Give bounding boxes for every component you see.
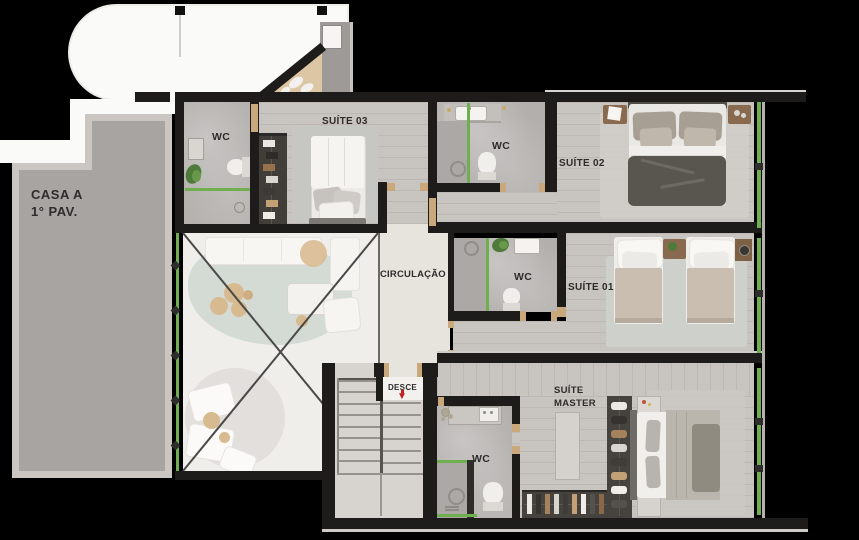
door-frame — [438, 397, 444, 406]
unit-title: CASA A 1° PAV. — [31, 186, 83, 220]
window-mullion — [755, 163, 763, 170]
stair-tread — [337, 437, 381, 439]
clothes-item — [611, 458, 627, 466]
pendant-light — [441, 417, 445, 421]
stair-tread — [337, 460, 381, 462]
flower — [642, 400, 646, 404]
bed-blanket — [687, 268, 734, 322]
stairs-down-icon-stem — [401, 390, 404, 395]
clothes-item — [590, 494, 595, 514]
door-frame — [557, 307, 566, 317]
clothes-item — [611, 444, 627, 452]
wall-segment — [175, 471, 335, 480]
duvet-fold — [686, 412, 687, 498]
flower — [648, 403, 651, 406]
wall-segment — [437, 353, 763, 363]
door-frame — [387, 183, 395, 191]
plant-leaf — [499, 241, 508, 249]
wall-segment — [512, 396, 520, 424]
stair-center-line — [380, 473, 382, 516]
wall-segment — [448, 233, 454, 312]
wall-segment — [135, 92, 170, 102]
door-frame — [500, 183, 506, 192]
stair-tread — [337, 380, 381, 382]
window-mullion — [171, 441, 181, 451]
pendant-light — [448, 414, 453, 419]
stair-tread — [337, 391, 381, 393]
nightstand — [637, 497, 661, 517]
door-opening — [389, 363, 417, 377]
window-mullion — [171, 261, 181, 271]
wall-segment — [423, 377, 437, 518]
wall-segment — [175, 92, 184, 233]
door-frame — [512, 446, 520, 454]
room-label-suite01: SUÍTE 01 — [568, 282, 614, 293]
wall-segment — [175, 224, 387, 233]
cup — [734, 110, 740, 116]
door-frame — [251, 104, 258, 132]
floor-plan-canvas: CASA A 1° PAV. WC SUÍTE 03 WC SUÍTE 02 C… — [0, 0, 859, 540]
stair-tread — [337, 426, 381, 428]
terrace-upper-fill — [92, 160, 165, 172]
soap-tray — [479, 407, 499, 422]
circulation-floor — [378, 233, 450, 363]
toilet — [483, 482, 503, 504]
clothes-item — [263, 164, 275, 171]
clothes-item — [263, 212, 275, 219]
stair-handrail — [337, 378, 339, 473]
stair-tread — [382, 402, 421, 404]
duvet-fold — [344, 138, 345, 186]
stair-tread — [382, 462, 421, 464]
wall-niche — [188, 138, 204, 160]
room-label-wc-master: WC — [472, 453, 490, 465]
decor-dot — [447, 108, 451, 112]
wall-segment — [422, 363, 438, 377]
blanket-foot — [687, 318, 734, 323]
clothes-item — [563, 494, 568, 514]
suite-master-line1: SUÍTE — [554, 384, 596, 397]
door-frame — [551, 311, 557, 321]
room-label-wc-suite01: WC — [514, 271, 532, 283]
wall-segment — [437, 396, 520, 406]
stair-tread — [382, 438, 421, 440]
door-opening — [512, 432, 520, 446]
door-frame — [512, 424, 520, 432]
soap-dot — [490, 411, 493, 414]
technical-room-door — [322, 25, 342, 49]
stair-tread — [382, 414, 421, 416]
room-label-wc-suite03: WC — [212, 131, 230, 143]
wall-segment — [557, 233, 566, 317]
clothes-item — [266, 152, 278, 159]
suite-master-line2: MASTER — [554, 397, 596, 410]
clothes-item — [536, 494, 541, 514]
shower-glass — [467, 103, 470, 183]
blanket-foot — [615, 318, 662, 323]
window-mullion — [755, 418, 763, 425]
room-label-wc-suite02: WC — [492, 140, 510, 152]
room-label-suite-master: SUÍTE MASTER — [554, 384, 596, 410]
shower-head — [448, 488, 465, 505]
bench — [555, 412, 580, 480]
clothes-item — [266, 176, 278, 183]
window-mullion — [755, 290, 763, 297]
shower-head — [450, 161, 466, 177]
clothes-item — [611, 472, 627, 480]
clothes-item — [611, 416, 627, 424]
clothes-item — [527, 494, 532, 514]
wall-segment — [378, 182, 387, 233]
pillow — [645, 456, 661, 489]
bed-blanket — [692, 424, 720, 492]
stair-tread — [382, 426, 421, 428]
clothes-item — [599, 494, 604, 514]
wall-segment — [428, 92, 437, 192]
pillow — [645, 420, 661, 453]
stair-tread — [337, 414, 381, 416]
unit-title-line1: CASA A — [31, 186, 83, 203]
floor-drain — [445, 506, 459, 508]
toilet-tank — [478, 172, 496, 180]
roof-vent — [175, 6, 185, 15]
cup — [741, 113, 746, 118]
room-label-suite02: SUÍTE 02 — [559, 158, 605, 169]
clothes-item — [263, 188, 275, 195]
clothes-item — [581, 494, 586, 514]
decor-dot — [502, 106, 506, 110]
bed-blanket — [615, 268, 662, 322]
sink — [455, 106, 487, 121]
window-glass — [757, 368, 761, 515]
clothes-item — [554, 494, 559, 514]
shower-glass — [437, 460, 467, 463]
clothes-item — [545, 494, 550, 514]
clothes-item — [263, 140, 275, 147]
window-mullion — [171, 396, 181, 406]
room-label-suite03: SUÍTE 03 — [322, 116, 368, 127]
stair-tread — [337, 403, 381, 405]
wall-segment — [374, 363, 384, 377]
door-frame — [520, 311, 526, 321]
stair-tread — [337, 449, 381, 451]
wall-segment — [545, 92, 557, 192]
wall-segment — [322, 363, 335, 518]
window-mullion — [755, 465, 763, 472]
wall-segment — [512, 454, 520, 518]
door-frame — [448, 321, 454, 328]
roof-vent — [317, 6, 327, 15]
bed-duvet — [311, 136, 364, 188]
plant-leaf — [192, 170, 201, 182]
toilet — [478, 152, 496, 174]
wall-outline — [322, 529, 808, 532]
shower-head — [464, 241, 479, 256]
book — [607, 106, 622, 121]
sink — [514, 238, 540, 254]
door-frame — [420, 183, 428, 191]
bed-blanket — [628, 156, 726, 206]
floor-drain — [445, 509, 459, 511]
toilet-tank — [483, 502, 503, 511]
wall-segment — [437, 183, 500, 192]
clothes-item — [611, 402, 627, 410]
clothes-item — [611, 500, 627, 508]
floor-drain — [234, 202, 245, 213]
unit-title-line2: 1° PAV. — [31, 203, 83, 220]
soap-dot — [483, 411, 486, 414]
wall-segment — [437, 222, 763, 233]
duvet-fold — [676, 412, 677, 498]
decor-bowl — [739, 245, 750, 256]
wall-segment — [175, 92, 806, 102]
stair-tread — [382, 450, 421, 452]
window-mullion — [171, 306, 181, 316]
bed-headboard — [630, 410, 637, 500]
duvet-fold — [328, 138, 329, 186]
roof-divider-line — [179, 14, 181, 57]
toilet-tank — [503, 303, 520, 311]
plant — [668, 242, 677, 251]
door-frame — [429, 198, 436, 226]
clothes-item — [572, 494, 577, 514]
shower-glass — [486, 238, 489, 312]
shower-glass — [185, 188, 251, 191]
shower-glass — [437, 514, 477, 517]
room-label-circulation: CIRCULAÇÃO — [380, 269, 446, 280]
wall-segment — [448, 311, 520, 321]
window-mullion — [171, 351, 181, 361]
living-glass-line — [378, 233, 380, 363]
clothes-item — [611, 430, 627, 438]
clothes-item — [611, 486, 627, 494]
shower-partition — [467, 460, 474, 518]
clothes-item — [266, 200, 278, 207]
